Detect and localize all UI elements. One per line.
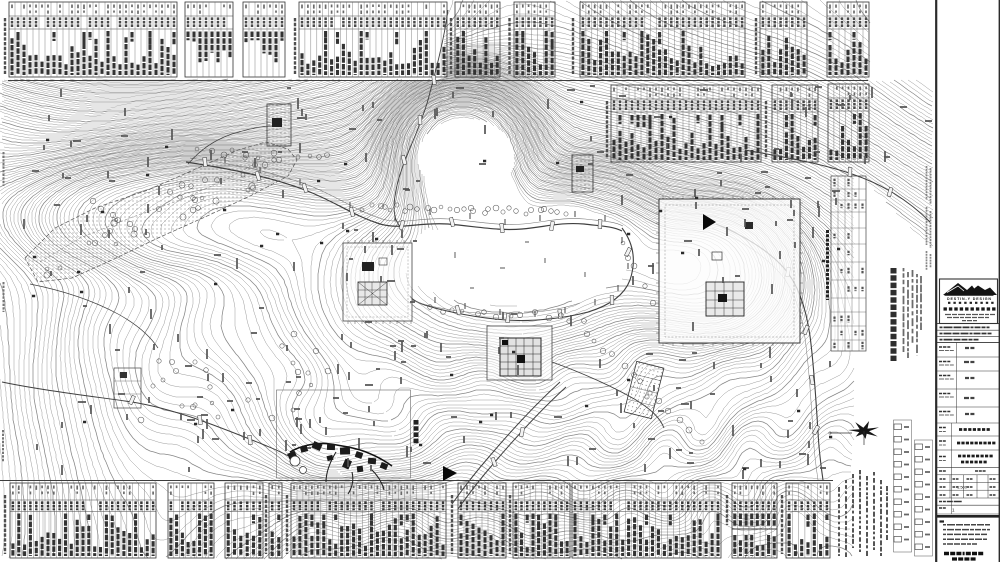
svg-text:1:500: 1:500 — [957, 485, 968, 490]
svg-text:DESTIN-Y DESIGN: DESTIN-Y DESIGN — [947, 297, 991, 301]
